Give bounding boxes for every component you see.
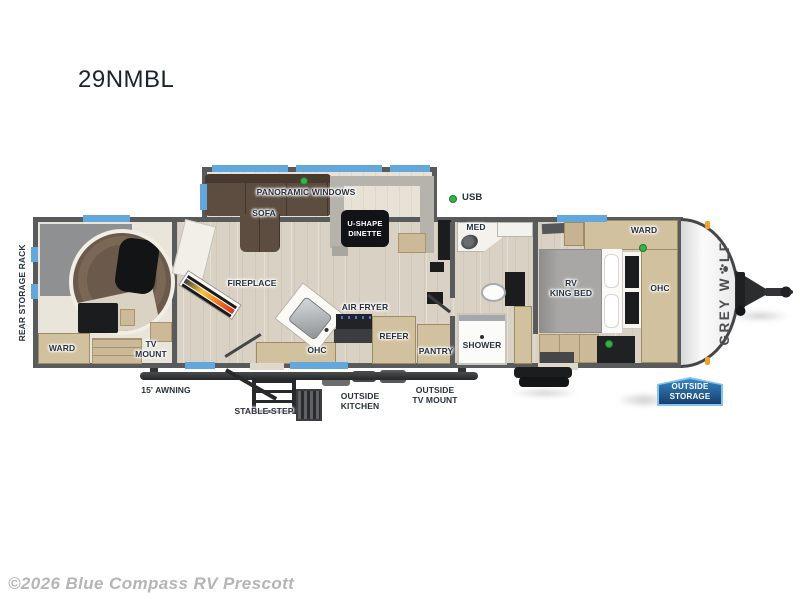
slideout-window (296, 165, 382, 172)
hitch (735, 266, 793, 320)
shower-head-wall (459, 315, 505, 321)
badge-line: OUTSIDE (672, 382, 709, 392)
clearance-marker (705, 221, 710, 229)
rear-ward-label: WARD (38, 344, 86, 354)
slideout-window (212, 165, 288, 172)
steps-shadow (510, 388, 580, 398)
entry-door-opening (250, 363, 284, 370)
tv-mount-label: TVMOUNT (128, 340, 174, 360)
dinette-seat (398, 233, 426, 253)
rear-tv-cabinet (78, 303, 118, 333)
step-rung (252, 400, 296, 403)
paw-icon (719, 264, 729, 274)
refer-label: REFER (372, 332, 416, 342)
outside-kitchen-grill (296, 389, 322, 421)
usb-port-dot (300, 177, 308, 185)
outside-kitchen-label: OUTSIDEKITCHEN (328, 392, 392, 412)
badge-line: STORAGE (670, 392, 711, 402)
rv-king-bed-label: RVKING BED (542, 279, 600, 299)
rear-top-window (83, 215, 130, 222)
fireplace-label: FIREPLACE (220, 279, 284, 289)
dinette-table-label: U-SHAPEDINETTE (341, 210, 389, 247)
shower-drain (480, 335, 484, 339)
brand-logo-text: LF (717, 241, 732, 263)
step-rung (252, 390, 296, 393)
shelf-cubby (625, 256, 639, 288)
dinette-table: U-SHAPEDINETTE (341, 210, 389, 247)
bath-wall (450, 222, 455, 298)
panoramic-windows-label: PANORAMIC WINDOWS (256, 188, 356, 198)
range-oven (334, 329, 372, 343)
sofa-chaise (240, 214, 280, 252)
usb-legend-label: USB (462, 193, 490, 204)
bedroom-dresser (597, 336, 635, 363)
dealer-watermark: ©2026 Blue Compass RV Prescott (8, 574, 294, 594)
shower (457, 313, 507, 365)
sofa-label: SOFA (244, 209, 284, 219)
pillow (604, 254, 619, 288)
rear-side-window (31, 284, 38, 299)
usb-legend-dot (449, 195, 457, 203)
bedroom-ohc (641, 249, 678, 363)
fold-steps (519, 377, 569, 387)
rear-side-table (120, 309, 135, 326)
outside-storage-badge-face: OUTSIDE STORAGE (659, 379, 721, 404)
stable-step-label: STABLE STEP (230, 407, 298, 417)
bedroom-window (557, 215, 607, 222)
linen-cabinet (514, 306, 532, 364)
slideout-side-window (200, 184, 207, 210)
page-title: 29NMBL (78, 66, 174, 94)
awning-rail (140, 372, 478, 380)
air-fryer-label: AIR FRYER (334, 303, 396, 313)
wall-cabinet (430, 262, 444, 272)
bath-wall (450, 316, 455, 368)
nightstand (564, 222, 584, 246)
floorplan-page: 29NMBL ©2026 Blue Compass RV Prescott (0, 0, 800, 600)
dinette-bench (330, 176, 434, 186)
toilet (481, 283, 506, 302)
shower-label: SHOWER (456, 341, 508, 351)
kitchen-sink (288, 296, 333, 341)
kitchen-window (290, 362, 348, 369)
med-label: MED (458, 223, 494, 233)
entry-mat (540, 352, 574, 363)
awning-label: 15' AWNING (128, 386, 204, 396)
pillow (604, 294, 619, 328)
kitchen-ohc-label: OHC (298, 346, 336, 356)
clearance-marker (705, 357, 710, 365)
bedroom-ohc-label: OHC (642, 284, 678, 294)
rear-side-window (31, 247, 38, 262)
lounge-table (113, 236, 160, 295)
faucet (324, 327, 330, 333)
usb-port-dot (639, 244, 647, 252)
outside-tv-mount-label: OUTSIDETV MOUNT (400, 386, 470, 406)
shelf-cubby (625, 292, 639, 324)
rear-storage-rack-label: REAR STORAGE RACK (18, 228, 28, 358)
range-cooktop (336, 314, 372, 329)
bedroom-shelves (622, 251, 642, 329)
living-window (185, 362, 215, 369)
step-rung (252, 380, 296, 383)
outside-storage-badge: OUTSIDE STORAGE (657, 377, 723, 406)
pantry-label: PANTRY (414, 347, 458, 357)
dinette-footrest (332, 246, 348, 256)
brand-logo-text: GREY W (717, 276, 732, 346)
bedroom-wall (533, 222, 538, 334)
brand-logo: GREY W LF (714, 233, 734, 353)
bedroom-ward-label: WARD (618, 226, 670, 236)
usb-port-dot (605, 340, 613, 348)
slideout-window (390, 165, 430, 172)
bath-cabinet (505, 272, 525, 306)
bath-counter (497, 222, 533, 237)
